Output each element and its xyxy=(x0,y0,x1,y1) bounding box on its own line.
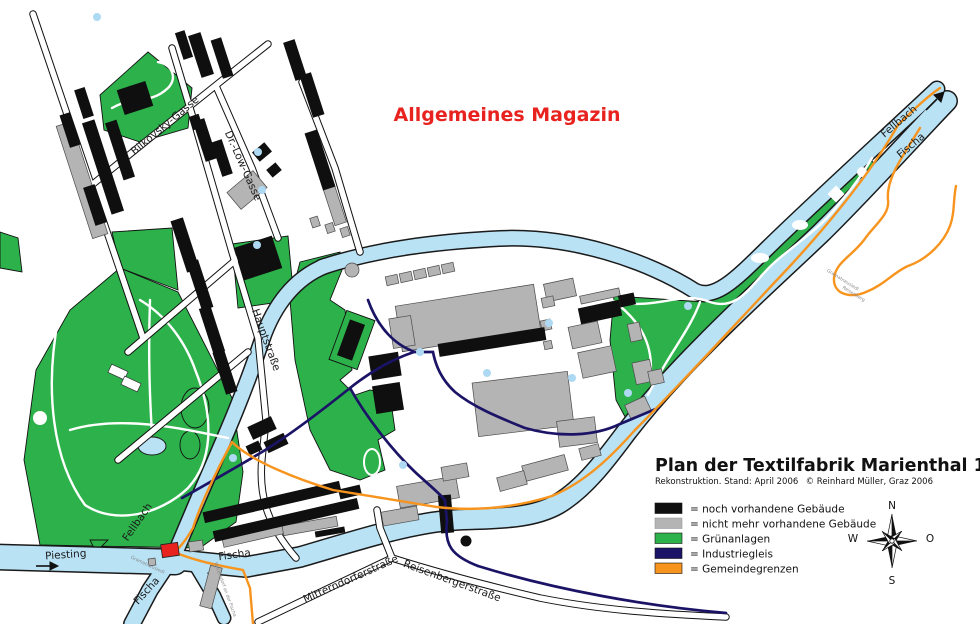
buildings-gone-shape xyxy=(578,346,617,379)
tree-dots-shape xyxy=(93,13,101,21)
tree-dots-shape xyxy=(624,389,632,397)
tree-dots-shape xyxy=(399,461,407,469)
red-highlight-building xyxy=(161,542,180,557)
green-bank-2 xyxy=(180,431,200,459)
legend-swatch xyxy=(655,548,682,559)
label-reisenbergerstrasse: Reisenbergerstraße xyxy=(402,558,503,604)
buildings-gone-shape xyxy=(441,463,469,481)
buildings-existing-shape xyxy=(283,39,307,81)
buildings-existing-shape xyxy=(211,37,234,78)
buildings-gone-shape xyxy=(385,274,399,285)
buildings-gone-shape xyxy=(648,369,665,386)
buildings-existing-shape xyxy=(266,162,282,177)
buildings-gone-shape xyxy=(543,340,552,349)
compass-o: O xyxy=(926,533,934,545)
buildings-gone-shape xyxy=(568,321,602,349)
map-page: Allgemeines Magazin Bilkovsky-Gasse Dr.-… xyxy=(0,0,980,624)
tree-dots-shape xyxy=(229,454,237,462)
legend-swatch xyxy=(655,503,682,514)
green-corner xyxy=(0,232,22,272)
legend-label: = noch vorhandene Gebäude xyxy=(690,504,845,516)
marienthal-map: Allgemeines Magazin Bilkovsky-Gasse Dr.-… xyxy=(0,0,980,624)
buildings-gone-shape xyxy=(340,226,350,237)
buildings-gone-shape xyxy=(345,263,359,277)
rail-marker-dot xyxy=(461,536,472,547)
legend: = noch vorhandene Gebäude = nicht mehr v… xyxy=(655,503,876,576)
buildings-existing-shape xyxy=(189,114,203,130)
tree-dots-shape xyxy=(416,348,424,356)
island-ponds-shape xyxy=(751,253,769,263)
legend-label: = nicht mehr vorhandene Gebäude xyxy=(690,519,876,531)
tree-dots-shape xyxy=(254,148,262,156)
map-title: Plan der Textilfabrik Marienthal 1930 xyxy=(655,456,980,476)
buildings-existing-shape xyxy=(372,382,404,414)
tree-dots-shape xyxy=(568,374,576,382)
buildings-gone-shape xyxy=(399,271,413,282)
island-ponds-shape xyxy=(792,220,808,230)
legend-swatch xyxy=(655,533,682,544)
buildings-gone-shape xyxy=(441,262,455,273)
tree-dots-shape xyxy=(545,319,553,327)
map-copyright: © Reinhard Müller, Graz 2006 xyxy=(806,477,933,487)
title-block: Plan der Textilfabrik Marienthal 1930 Re… xyxy=(655,456,980,487)
legend-swatch xyxy=(655,563,682,574)
buildings-gone-shape xyxy=(188,540,203,552)
buildings-gone-shape xyxy=(541,296,555,308)
buildings-gone-shape xyxy=(522,455,569,482)
compass-w: W xyxy=(848,533,859,545)
legend-swatch xyxy=(655,518,682,529)
compass-rose-shape xyxy=(890,539,894,543)
legend-label: = Gemeindegrenzen xyxy=(690,564,799,576)
buildings-gone-shape xyxy=(497,471,528,492)
tree-dots-shape xyxy=(253,241,261,249)
annotation-allgemeines-magazin: Allgemeines Magazin xyxy=(394,104,621,126)
buildings-gone-shape xyxy=(389,315,415,348)
tree-dots-shape xyxy=(483,369,491,377)
legend-label: = Grünanlagen xyxy=(690,534,770,546)
white-clearing xyxy=(33,411,47,425)
buildings-gone-shape xyxy=(427,265,441,276)
legend-label: = Industriegleis xyxy=(690,549,773,561)
map-status: Rekonstruktion. Stand: April 2006 xyxy=(655,477,798,487)
buildings-gone-shape xyxy=(325,222,335,233)
compass-s: S xyxy=(889,575,896,587)
compass-n: N xyxy=(888,500,896,512)
buildings-gone-shape xyxy=(413,268,427,279)
buildings-existing-shape xyxy=(74,87,94,119)
tree-dots-shape xyxy=(684,302,692,310)
buildings-gone-shape xyxy=(310,216,321,228)
municipal-boundaries xyxy=(174,88,956,624)
